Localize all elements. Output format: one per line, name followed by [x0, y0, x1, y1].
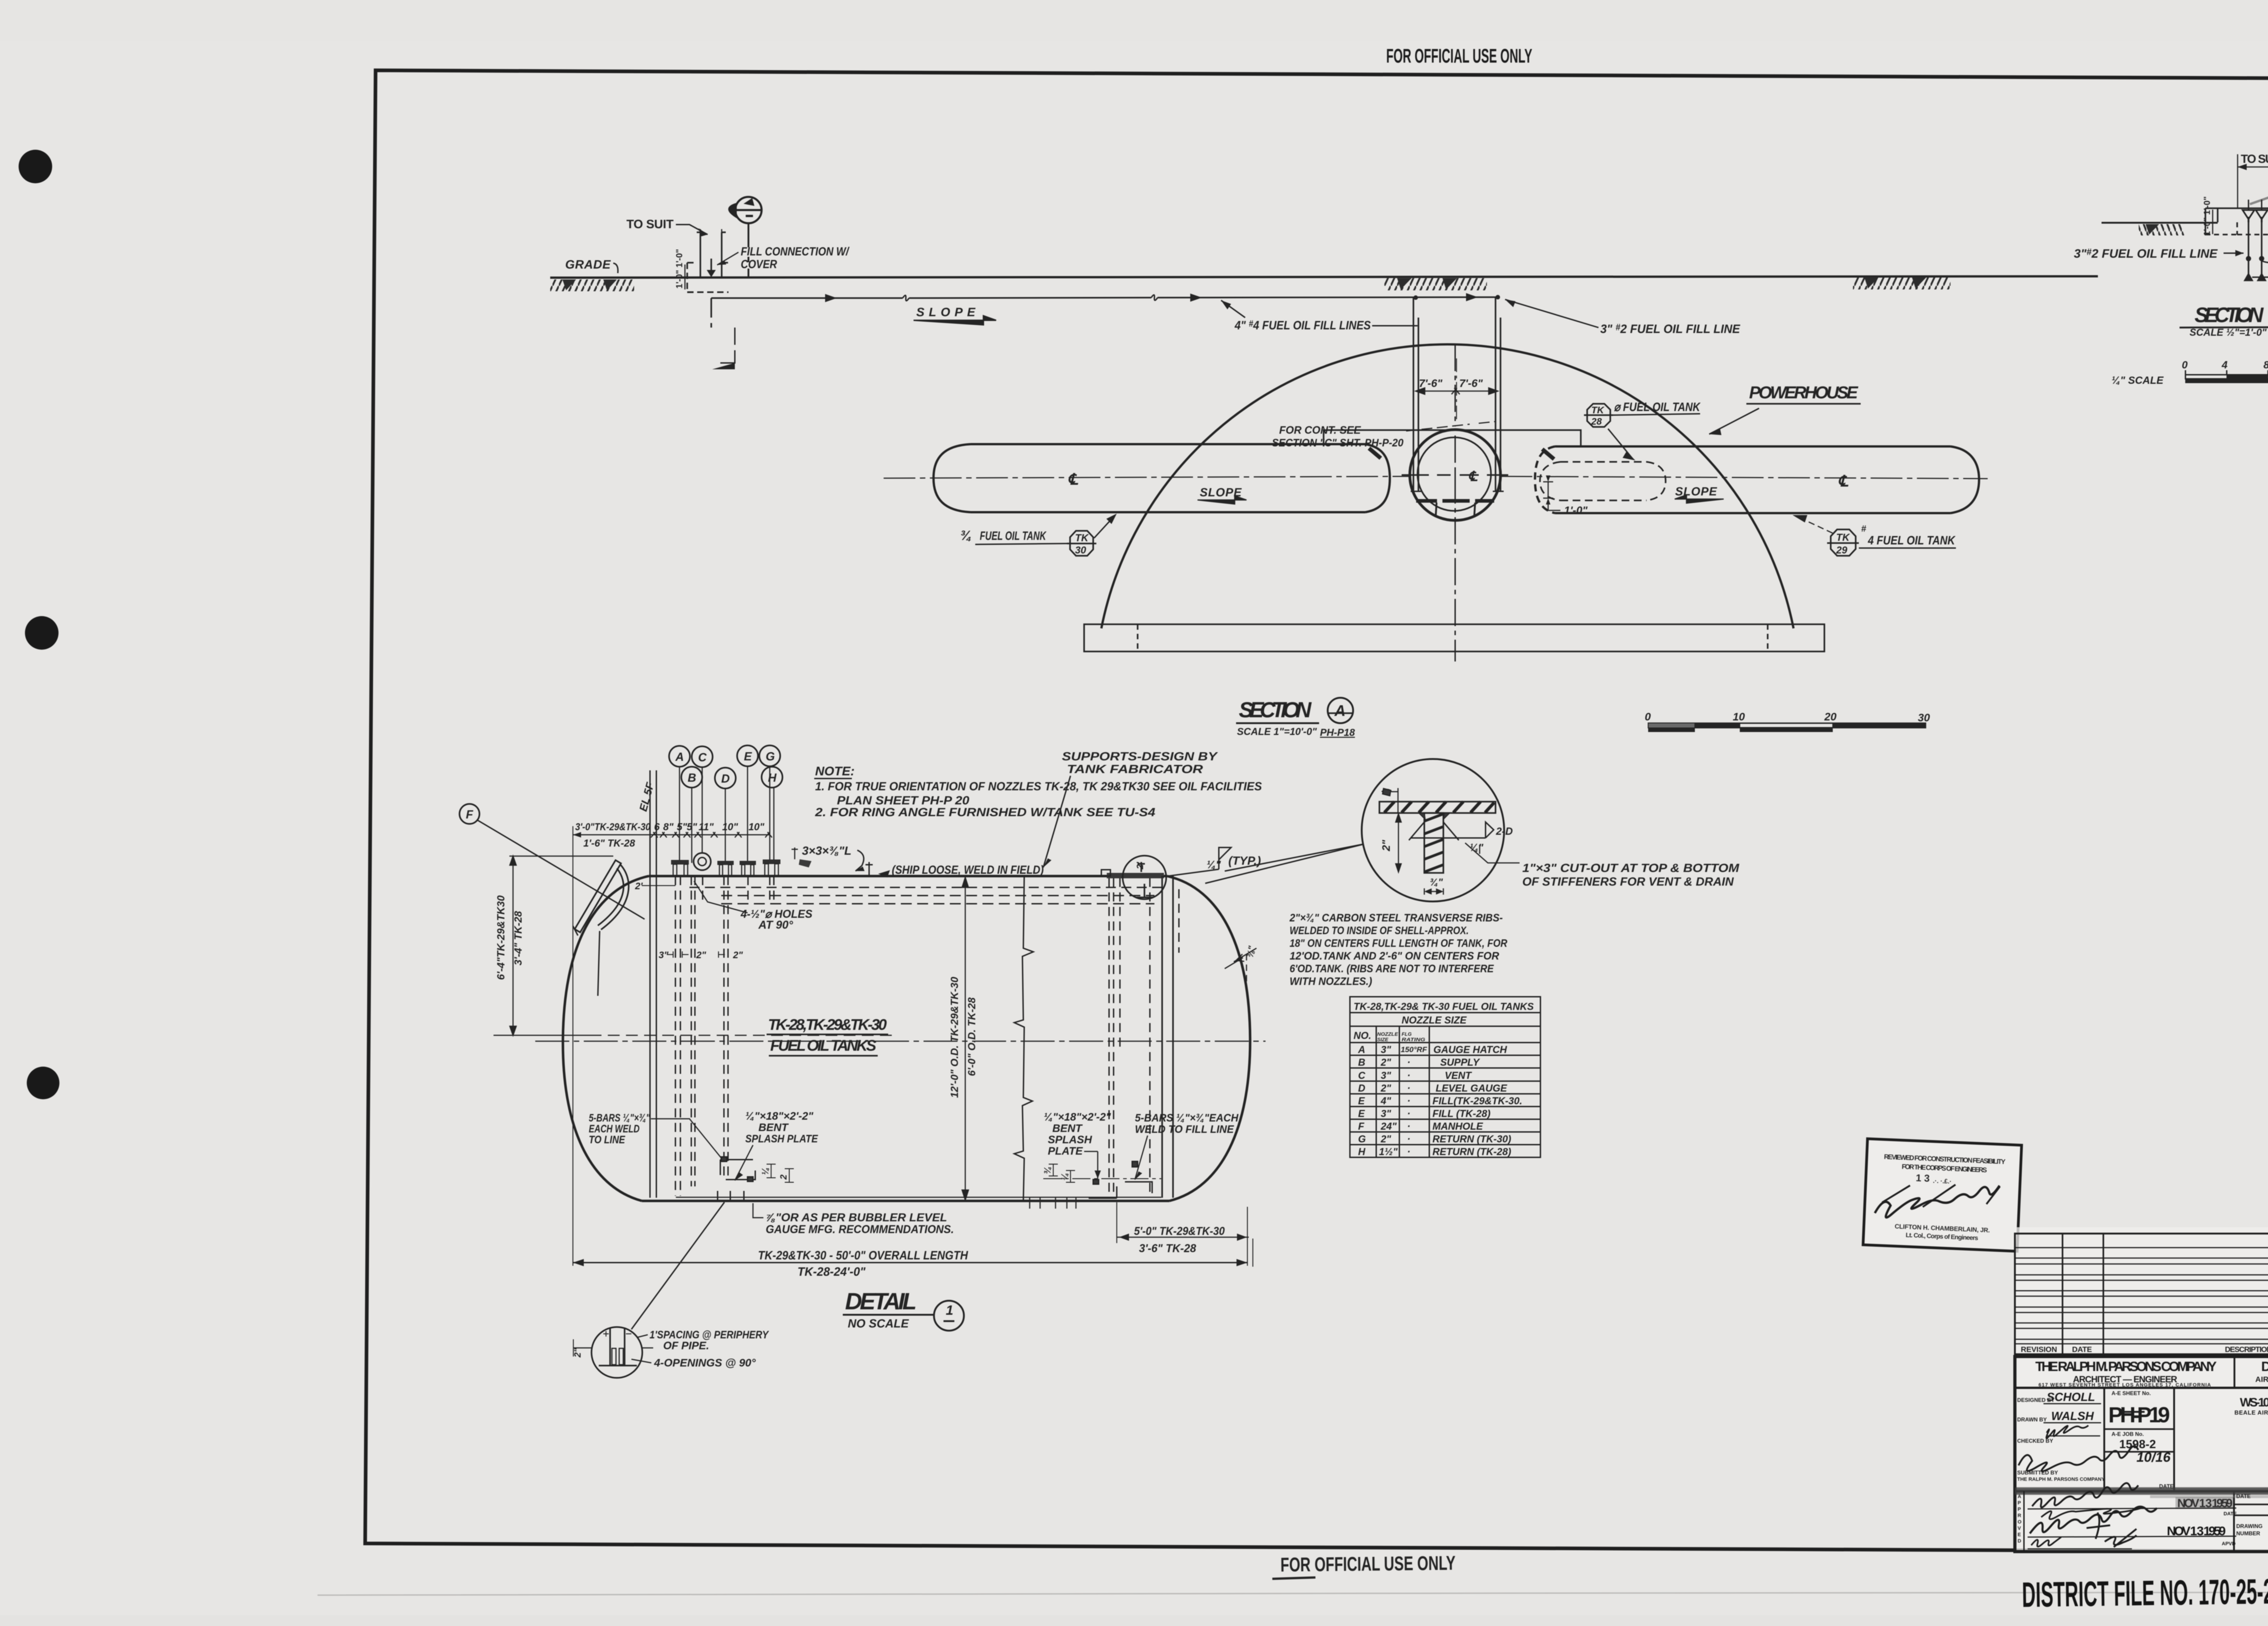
svg-text:1 3: 1 3: [1916, 1172, 1930, 1184]
svg-text:2": 2": [1380, 1082, 1391, 1094]
svg-text:SUPPLY: SUPPLY: [1440, 1057, 1481, 1068]
svg-text:8": 8": [663, 821, 674, 833]
svg-text:5'-0" TK-29&TK-30: 5'-0" TK-29&TK-30: [1134, 1225, 1225, 1238]
svg-text:C: C: [1358, 1070, 1366, 1081]
svg-text:A: A: [2018, 1494, 2021, 1499]
svg-text:2": 2": [573, 1348, 583, 1358]
svg-text:⌀ FUEL OIL TANK: ⌀ FUEL OIL TANK: [1614, 400, 1701, 414]
svg-text:LEVEL GAUGE: LEVEL GAUGE: [1436, 1082, 1508, 1094]
svg-text:SCALE 1"=10'-0": SCALE 1"=10'-0": [1237, 726, 1317, 737]
svg-text:3'-4" TK-28: 3'-4" TK-28: [512, 911, 524, 965]
svg-text:V: V: [2018, 1526, 2021, 1531]
svg-text:2": 2": [1380, 1133, 1391, 1145]
svg-text:1. FOR TRUE ORIENTATION OF NOZ: 1. FOR TRUE ORIENTATION OF NOZZLES TK-28…: [815, 779, 1262, 793]
svg-text:6'OD.TANK. (RIBS ARE NOT TO IN: 6'OD.TANK. (RIBS ARE NOT TO INTERFERE: [1290, 963, 1494, 975]
svg-text:NOTE:: NOTE:: [815, 764, 855, 778]
svg-text:G: G: [766, 749, 775, 763]
svg-text:.·. ·.£.·: .·. ·.£.·: [1933, 1177, 1952, 1185]
svg-text:20: 20: [1824, 711, 1837, 723]
svg-text:·: ·: [1407, 1146, 1410, 1157]
svg-text:3": 3": [659, 950, 669, 960]
svg-text:2": 2": [733, 950, 743, 960]
svg-text:THE RALPH M. PARSONS COMPANY: THE RALPH M. PARSONS COMPANY: [2017, 1477, 2105, 1482]
svg-text:2-D: 2-D: [1496, 825, 1513, 837]
svg-text:VENT: VENT: [1445, 1070, 1472, 1081]
svg-text:C: C: [698, 750, 707, 764]
svg-text:E: E: [744, 749, 752, 763]
svg-text:FUEL OIL TANK: FUEL OIL TANK: [980, 529, 1047, 543]
svg-text:¾: ¾: [1043, 1166, 1053, 1174]
svg-text:DRAWING: DRAWING: [2236, 1523, 2263, 1529]
svg-text:4: 4: [2221, 359, 2228, 371]
svg-text:A: A: [1358, 1044, 1365, 1055]
svg-text:·: ·: [1407, 1070, 1410, 1081]
svg-text:PH-P18: PH-P18: [1320, 727, 1355, 738]
svg-text:5": 5": [687, 821, 697, 833]
svg-text:WITH NOZZLES.): WITH NOZZLES.): [1290, 975, 1372, 988]
svg-text:O: O: [2018, 1519, 2022, 1525]
svg-text:TK-28,TK-29& TK-30 FUEL OIL TA: TK-28,TK-29& TK-30 FUEL OIL TANKS: [1354, 1001, 1534, 1012]
svg-text:℄: ℄: [1068, 471, 1079, 488]
svg-text:30: 30: [1075, 544, 1086, 556]
svg-text:A-E JOB No.: A-E JOB No.: [2112, 1431, 2144, 1437]
svg-text:¼: ¼: [761, 1167, 771, 1175]
svg-text:10": 10": [722, 821, 738, 833]
svg-text:THE RALPH M. PARSONS COMPANY: THE RALPH M. PARSONS COMPANY: [2035, 1359, 2217, 1374]
svg-text:FOR OFFICIAL USE ONLY: FOR OFFICIAL USE ONLY: [1281, 1552, 1456, 1576]
svg-text:·: ·: [1407, 1121, 1410, 1132]
svg-text:1½": 1½": [1379, 1146, 1398, 1157]
svg-text:D: D: [721, 772, 730, 785]
svg-text:DISTRICT FILE NO. 170-25-28: DISTRICT FILE NO. 170-25-28: [2022, 1571, 2268, 1615]
svg-text:3'-0"TK-29&TK-30: 3'-0"TK-29&TK-30: [575, 821, 651, 833]
svg-text:B: B: [688, 771, 696, 784]
svg-text:¼"×18"×2'-2": ¼"×18"×2'-2": [745, 1110, 814, 1122]
svg-text:TK: TK: [1836, 532, 1850, 543]
svg-text:RETURN (TK-28): RETURN (TK-28): [1432, 1146, 1511, 1157]
svg-text:R: R: [2018, 1513, 2021, 1518]
svg-text:E: E: [1358, 1108, 1365, 1119]
svg-text:29: 29: [1836, 544, 1848, 556]
svg-text:DATE: DATE: [2236, 1493, 2251, 1499]
svg-text:0: 0: [1645, 711, 1651, 723]
svg-text:EACH WELD: EACH WELD: [589, 1123, 640, 1135]
svg-text:TO SUIT: TO SUIT: [2241, 152, 2268, 166]
svg-text:TK-28-24'-0": TK-28-24'-0": [797, 1265, 866, 1278]
svg-text:3"#2 FUEL OIL FILL LINE: 3"#2 FUEL OIL FILL LINE: [2074, 247, 2218, 260]
svg-text:G: G: [1358, 1133, 1366, 1145]
svg-text:TK: TK: [1075, 532, 1089, 544]
svg-text:5-BARS ¼"×¾": 5-BARS ¼"×¾": [589, 1112, 650, 1124]
svg-text:6: 6: [654, 821, 660, 833]
svg-text:SECTION: SECTION: [1239, 698, 1312, 722]
svg-text:⅞"OR AS PER BUBBLER LEVEL: ⅞"OR AS PER BUBBLER LEVEL: [766, 1211, 947, 1224]
svg-text:28: 28: [1591, 416, 1602, 427]
svg-text:TO SUIT: TO SUIT: [626, 217, 674, 231]
svg-text:BENT: BENT: [758, 1122, 789, 1134]
svg-text:D: D: [2018, 1538, 2021, 1544]
svg-text:NOZZLE: NOZZLE: [1377, 1032, 1398, 1037]
svg-text:2': 2': [1135, 862, 1145, 870]
svg-text:¼" SCALE: ¼" SCALE: [2112, 374, 2164, 386]
svg-text:SCHOLL: SCHOLL: [2047, 1390, 2095, 1404]
svg-text:TK-28,TK-29&TK-30: TK-28,TK-29&TK-30: [768, 1016, 887, 1033]
svg-text:1'SPACING @ PERIPHERY: 1'SPACING @ PERIPHERY: [650, 1329, 769, 1341]
svg-text:7'-6": 7'-6": [1419, 377, 1442, 390]
svg-text:150°RF: 150°RF: [1401, 1045, 1427, 1054]
svg-text:POWERHOUSE: POWERHOUSE: [1749, 383, 1859, 402]
svg-text:18" ON CENTERS FULL LENGTH OF: 18" ON CENTERS FULL LENGTH OF TANK, FOR: [1290, 937, 1508, 950]
svg-text:AIR FORCE BALLISTIC MISSILE DI: AIR FORCE BALLISTIC MISSILE DIVISION (AR…: [2255, 1375, 2268, 1384]
svg-text:DETAIL: DETAIL: [845, 1288, 917, 1315]
svg-text:3": 3": [1381, 1044, 1391, 1055]
svg-text:DESCRIPTION: DESCRIPTION: [2225, 1345, 2268, 1354]
svg-text:2. FOR RING ANGLE FURNISHED W/: 2. FOR RING ANGLE FURNISHED W/TANK SEE T…: [815, 805, 1156, 819]
svg-text:SPLASH PLATE: SPLASH PLATE: [745, 1133, 818, 1145]
svg-text:℄: ℄: [1468, 469, 1478, 484]
svg-text:·: ·: [1407, 1133, 1410, 1145]
svg-text:3'-6" TK-28: 3'-6" TK-28: [1139, 1242, 1196, 1255]
svg-text:4": 4": [1380, 1095, 1391, 1107]
svg-text:DEPARTMENT OF THE AIR FORCE: DEPARTMENT OF THE AIR FORCE: [2261, 1359, 2268, 1374]
svg-text:FUEL OIL TANKS: FUEL OIL TANKS: [770, 1037, 876, 1054]
svg-text:D: D: [1358, 1082, 1365, 1094]
svg-text:12'OD.TANK AND 2'-6" ON CENTER: 12'OD.TANK AND 2'-6" ON CENTERS FOR: [1290, 950, 1500, 962]
svg-text:3": 3": [1381, 1070, 1391, 1081]
svg-text:FOR OFFICIAL USE ONLY: FOR OFFICIAL USE ONLY: [1386, 45, 1532, 67]
svg-text:0: 0: [2182, 359, 2188, 371]
svg-text:6'-4"TK-29&TK30: 6'-4"TK-29&TK30: [495, 895, 507, 980]
svg-text:¼": ¼": [1470, 842, 1484, 853]
svg-text:OF STIFFENERS FOR VENT & DRAIN: OF STIFFENERS FOR VENT & DRAIN: [1522, 875, 1734, 888]
svg-text:·: ·: [1407, 1082, 1410, 1094]
svg-text:F: F: [466, 808, 474, 821]
svg-text:4 FUEL OIL TANK: 4 FUEL OIL TANK: [1867, 534, 1956, 547]
svg-text:6'-0" O.D. TK-28: 6'-0" O.D. TK-28: [966, 997, 978, 1076]
svg-text:1598-2: 1598-2: [2119, 1437, 2156, 1451]
svg-text:24": 24": [1380, 1121, 1397, 1132]
svg-text:#: #: [1861, 524, 1867, 534]
svg-text:8: 8: [2263, 359, 2268, 371]
svg-text:SIZE: SIZE: [1377, 1037, 1388, 1043]
svg-text:℄: ℄: [1838, 473, 1849, 490]
svg-text:¼: ¼: [1060, 1173, 1070, 1180]
svg-text:TO LINE: TO LINE: [589, 1134, 626, 1146]
svg-text:¼"×18"×2'-2": ¼"×18"×2'-2": [1044, 1111, 1111, 1123]
svg-text:MANHOLE: MANHOLE: [1432, 1121, 1484, 1132]
svg-text:RATING: RATING: [1402, 1037, 1426, 1043]
svg-text:WELDED TO INSIDE OF SHELL-APPR: WELDED TO INSIDE OF SHELL-APPROX.: [1290, 925, 1469, 937]
svg-text:1'-0" 1'-0": 1'-0" 1'-0": [2203, 196, 2212, 236]
svg-text:RETURN (TK-30): RETURN (TK-30): [1432, 1133, 1511, 1145]
svg-text:5": 5": [677, 821, 687, 833]
svg-text:2': 2': [635, 881, 643, 891]
svg-text:10: 10: [1733, 711, 1745, 723]
svg-text:SECTION: SECTION: [2195, 303, 2264, 327]
svg-text:DATE: DATE: [2224, 1511, 2237, 1517]
svg-text:P: P: [2018, 1500, 2021, 1506]
svg-text:B: B: [1358, 1057, 1365, 1068]
svg-text:10/16: 10/16: [2136, 1450, 2170, 1465]
svg-text:A: A: [675, 750, 684, 764]
svg-text:NO SCALE: NO SCALE: [848, 1317, 909, 1330]
svg-text:FLG: FLG: [1402, 1032, 1412, 1037]
svg-text:·: ·: [1407, 1095, 1410, 1107]
svg-text:GAUGE MFG. RECOMMENDATIONS.: GAUGE MFG. RECOMMENDATIONS.: [766, 1223, 954, 1236]
svg-text:E: E: [2018, 1532, 2021, 1538]
svg-text:COVER: COVER: [741, 257, 777, 271]
svg-text:AT 90°: AT 90°: [758, 919, 793, 931]
svg-text:1"×3" CUT-OUT AT TOP & BOTTOM: 1"×3" CUT-OUT AT TOP & BOTTOM: [1522, 861, 1740, 875]
svg-text:DATE: DATE: [2072, 1345, 2092, 1354]
svg-text:3×3×⅜"L: 3×3×⅜"L: [802, 844, 851, 857]
svg-text:P: P: [2018, 1507, 2021, 1512]
svg-text:2"×¾" CARBON STEEL TRANSVERSE: 2"×¾" CARBON STEEL TRANSVERSE RIBS-: [1289, 912, 1503, 924]
svg-text:PLATE: PLATE: [1048, 1145, 1083, 1157]
svg-text:1'-6" TK-28: 1'-6" TK-28: [583, 837, 635, 849]
svg-text:2": 2": [1380, 840, 1393, 852]
svg-text:4-OPENINGS @ 90°: 4-OPENINGS @ 90°: [654, 1357, 756, 1369]
svg-text:4" #4 FUEL OIL FILL LINES: 4" #4 FUEL OIL FILL LINES: [1234, 318, 1371, 332]
svg-text:F: F: [1358, 1121, 1364, 1132]
svg-text:¾: ¾: [960, 528, 972, 543]
svg-text:NOZZLE SIZE: NOZZLE SIZE: [1402, 1014, 1467, 1026]
svg-text:PH-P19: PH-P19: [2108, 1403, 2170, 1427]
svg-text:3" #2 FUEL OIL FILL LINE: 3" #2 FUEL OIL FILL LINE: [1600, 322, 1740, 336]
svg-text:GRADE: GRADE: [565, 258, 611, 271]
svg-text:GAUGE HATCH: GAUGE HATCH: [1433, 1044, 1507, 1055]
svg-text:¾": ¾": [1430, 877, 1443, 888]
svg-text:·: ·: [1407, 1108, 1410, 1119]
svg-text:A-E SHEET No.: A-E SHEET No.: [2112, 1390, 2151, 1396]
svg-text:12'-0" O.D. TK-29&TK-30: 12'-0" O.D. TK-29&TK-30: [948, 977, 960, 1098]
svg-text:WALSH: WALSH: [2051, 1409, 2094, 1423]
svg-text:2": 2": [1380, 1057, 1391, 1068]
svg-text:BENT: BENT: [1052, 1122, 1083, 1135]
svg-text:1: 1: [946, 1303, 953, 1318]
svg-text:SLOPE: SLOPE: [1675, 485, 1717, 498]
svg-text:WELD TO FILL LINE: WELD TO FILL LINE: [1135, 1123, 1234, 1136]
svg-text:¼": ¼": [1207, 859, 1221, 871]
svg-text:WS-107 A-2 TECHNICAL FACILITIE: WS-107 A-2 TECHNICAL FACILITIES: [2240, 1396, 2268, 1409]
svg-text:SPLASH: SPLASH: [1048, 1134, 1092, 1146]
svg-text:1'-0" 1'-0": 1'-0" 1'-0": [675, 249, 684, 289]
svg-text:CHECKED BY: CHECKED BY: [2017, 1438, 2053, 1444]
svg-text:2: 2: [779, 1175, 789, 1180]
svg-text:H: H: [1358, 1146, 1366, 1157]
svg-text:NUMBER: NUMBER: [2236, 1530, 2260, 1537]
svg-text:TK: TK: [1591, 405, 1605, 416]
svg-text:FILL(TK-29&TK-30.: FILL(TK-29&TK-30.: [1432, 1095, 1522, 1107]
svg-text:3": 3": [1381, 1108, 1391, 1119]
svg-text:OF PIPE.: OF PIPE.: [663, 1340, 709, 1352]
svg-text:(SHIP LOOSE, WELD IN FIELD): (SHIP LOOSE, WELD IN FIELD): [892, 863, 1044, 877]
svg-text:DRAWN BY: DRAWN BY: [2017, 1416, 2047, 1423]
svg-text:BEALE AIR FORCE BASE, MARYSVIL: BEALE AIR FORCE BASE, MARYSVILLE, CALIFO…: [2234, 1409, 2268, 1416]
svg-text:FILL (TK-28): FILL (TK-28): [1432, 1108, 1491, 1119]
svg-text:2": 2": [696, 950, 707, 960]
svg-text:7'-6": 7'-6": [1459, 377, 1483, 390]
svg-text:·: ·: [1407, 1057, 1410, 1068]
svg-text:A: A: [1334, 702, 1346, 720]
svg-text:SUBMITTED BY: SUBMITTED BY: [2017, 1469, 2058, 1476]
svg-text:1'-0": 1'-0": [1564, 504, 1588, 517]
svg-text:10": 10": [748, 821, 764, 833]
svg-text:NO.: NO.: [1354, 1030, 1371, 1041]
svg-text:30: 30: [1918, 712, 1930, 724]
svg-text:TANK FABRICATOR: TANK FABRICATOR: [1067, 762, 1203, 776]
svg-text:APVD: APVD: [2222, 1541, 2236, 1547]
svg-text:SCALE ½"=1'-0": SCALE ½"=1'-0": [2190, 327, 2267, 338]
svg-text:617 WEST SEVENTH STREET LOS AN: 617 WEST SEVENTH STREET LOS ANGELES 17, …: [2038, 1382, 2211, 1388]
svg-text:11": 11": [699, 821, 714, 833]
svg-text:5-BARS ¼"×¾"EACH: 5-BARS ¼"×¾"EACH: [1135, 1112, 1239, 1124]
svg-text:SUPPORTS-DESIGN BY: SUPPORTS-DESIGN BY: [1062, 749, 1218, 763]
svg-text:E: E: [1358, 1095, 1365, 1107]
svg-text:TK-29&TK-30 - 50'-0" OVERALL L: TK-29&TK-30 - 50'-0" OVERALL LENGTH: [758, 1249, 968, 1262]
svg-text:NOV 1 3 1959: NOV 1 3 1959: [2167, 1524, 2226, 1538]
svg-text:FILL CONNECTION W/: FILL CONNECTION W/: [741, 245, 850, 258]
svg-text:REVISION: REVISION: [2021, 1345, 2057, 1354]
